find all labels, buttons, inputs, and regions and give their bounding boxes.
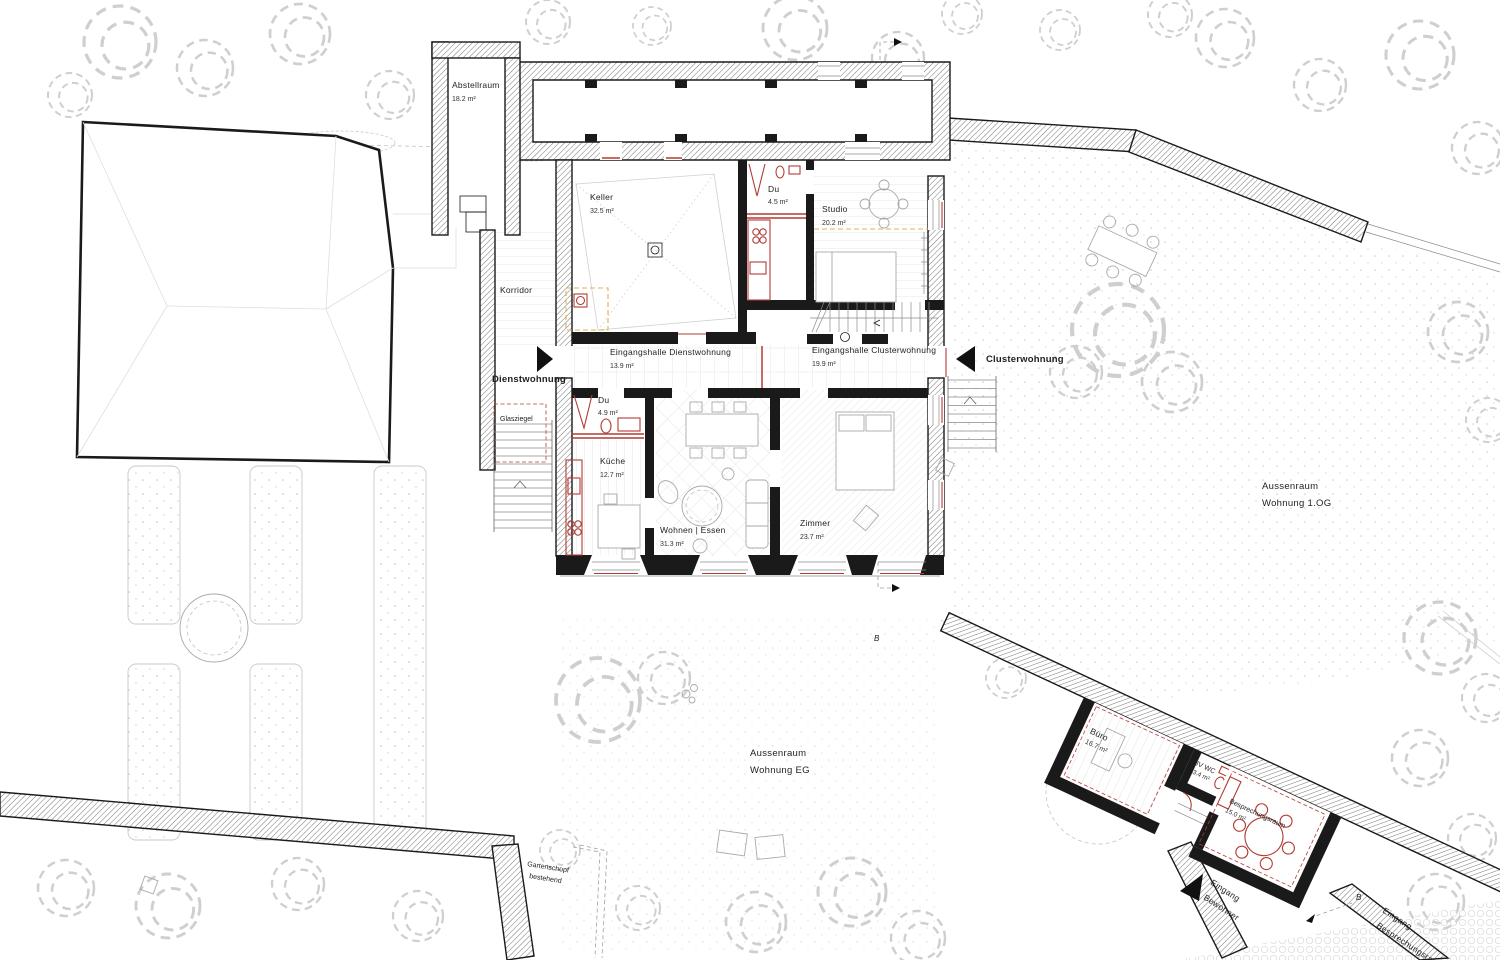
room-label-studio: Studio bbox=[822, 204, 848, 214]
label-dienstwohnung: Dienstwohnung bbox=[492, 374, 566, 385]
room-area-halle-dienst: 13.9 m² bbox=[610, 363, 634, 370]
room-label-wohnen: Wohnen | Essen bbox=[660, 525, 726, 535]
room-label-du-eg: Du bbox=[598, 395, 609, 405]
room-area-zimmer: 23.7 m² bbox=[800, 534, 824, 541]
room-label-korridor: Korridor bbox=[500, 285, 532, 295]
room-label-abstellraum: Abstellraum bbox=[452, 80, 500, 90]
wall-west-upper bbox=[556, 160, 572, 348]
room-label-kueche: Küche bbox=[600, 456, 625, 466]
room-area-du-og: 4.5 m² bbox=[768, 199, 789, 206]
label-aussenraum-eg-2: Wohnung EG bbox=[750, 765, 810, 776]
room-area-keller: 32.5 m² bbox=[590, 208, 614, 215]
wall-abstellraum-east bbox=[505, 58, 520, 235]
room-label-du-og: Du bbox=[768, 184, 779, 194]
label-aussenraum-eg-1: Aussenraum bbox=[750, 748, 806, 759]
room-area-halle-cluster: 19.9 m² bbox=[812, 361, 836, 368]
label-aussenraum-og-2: Wohnung 1.OG bbox=[1262, 498, 1331, 509]
room-area-du-eg: 4.9 m² bbox=[598, 410, 619, 417]
floor-plan-sheet: Büro 16.7 m² IV WC 3.4 m² Besprechungsra… bbox=[0, 0, 1500, 960]
wall-abstellraum-north bbox=[432, 42, 520, 58]
entry-stairs-west bbox=[494, 420, 552, 532]
wall-west-leanto bbox=[480, 230, 495, 470]
roof-building-existing bbox=[77, 122, 456, 462]
glasziegel-zone bbox=[494, 404, 546, 462]
section-letter-b-east: B bbox=[1356, 893, 1362, 902]
dienstwohnung-arrow-icon bbox=[537, 346, 553, 372]
gravel-area-east bbox=[950, 142, 1500, 700]
room-label-zimmer: Zimmer bbox=[800, 518, 830, 528]
room-area-studio: 20.2 m² bbox=[822, 220, 846, 227]
gravel-area-south bbox=[560, 620, 940, 955]
label-gartenschopf-2: bestehend bbox=[529, 873, 562, 885]
wall-south-window-bays bbox=[556, 555, 944, 576]
wall-abstellraum-west bbox=[432, 42, 448, 235]
room-label-halle-cluster: Eingangshalle Clusterwohnung bbox=[812, 345, 936, 355]
label-glasziegel: Glasziegel bbox=[500, 416, 533, 423]
garden-circle bbox=[180, 594, 248, 662]
room-label-halle-dienst: Eingangshalle Dienstwohnung bbox=[610, 347, 731, 357]
room-area-wohnen: 31.3 m² bbox=[660, 541, 684, 548]
room-area-abstellraum: 18.2 m² bbox=[452, 96, 476, 103]
section-letter-b-south: B bbox=[874, 634, 880, 643]
room-label-keller: Keller bbox=[590, 192, 613, 202]
floor-plan-canvas: Büro 16.7 m² IV WC 3.4 m² Besprechungsra… bbox=[0, 0, 1500, 960]
room-area-kueche: 12.7 m² bbox=[600, 472, 624, 479]
label-clusterwohnung: Clusterwohnung bbox=[986, 354, 1064, 365]
label-aussenraum-og-1: Aussenraum bbox=[1262, 481, 1318, 492]
